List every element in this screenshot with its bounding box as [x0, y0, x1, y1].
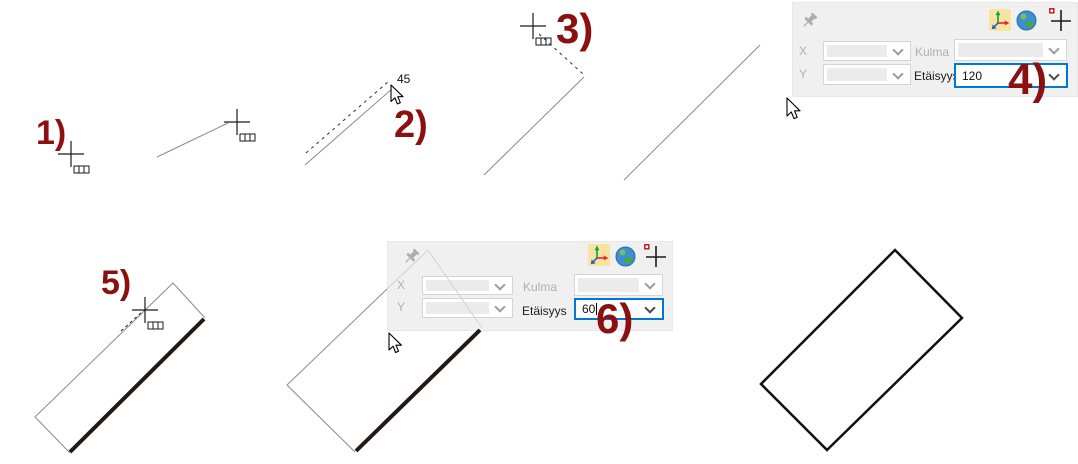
y-dropdown-value	[827, 68, 887, 81]
x-label: X	[799, 44, 807, 58]
x-dropdown[interactable]	[823, 41, 911, 61]
mouse-cursor-icon	[389, 333, 401, 353]
distance-label: Etäisyys	[522, 304, 567, 318]
y-dropdown[interactable]	[823, 64, 911, 85]
step4-line	[624, 45, 760, 180]
tutorial-canvas: X Y Kulma Etäisyys 120	[0, 0, 1078, 464]
step3-line	[484, 77, 584, 175]
step2-line	[305, 88, 393, 165]
x-dropdown[interactable]	[422, 276, 513, 295]
crosshair-cursor-icon	[520, 13, 551, 45]
pin-icon[interactable]	[801, 12, 819, 32]
crosshair-cursor-icon	[224, 109, 255, 141]
crosshair-cursor-icon	[132, 297, 163, 329]
angle-dropdown-value	[578, 278, 639, 292]
step-label-4: 4)	[1008, 58, 1047, 102]
angle-dropdown[interactable]	[574, 274, 663, 296]
step6-bottom-edge	[287, 385, 355, 452]
axis-origin-icon[interactable]	[989, 9, 1011, 31]
step5-base-line	[70, 319, 204, 452]
chevron-down-icon	[1048, 43, 1059, 54]
step5-dashed-line	[121, 312, 142, 331]
angle-annotation: 45	[397, 72, 410, 86]
y-label: Y	[397, 300, 405, 314]
chevron-down-icon	[644, 302, 655, 313]
step2-dashed-line	[306, 81, 389, 153]
chevron-down-icon	[892, 44, 903, 55]
crosshair-plus-icon[interactable]	[644, 244, 667, 268]
angle-label: Kulma	[523, 280, 557, 294]
distance-value: 120	[962, 69, 982, 83]
chevron-down-icon	[644, 278, 655, 289]
pin-icon[interactable]	[403, 248, 421, 268]
step6-base-line	[356, 330, 480, 451]
globe-icon[interactable]	[615, 246, 636, 267]
crosshair-plus-icon[interactable]	[1049, 8, 1072, 32]
mouse-cursor-icon	[787, 98, 800, 119]
step-label-2: 2)	[394, 106, 428, 144]
chevron-down-icon	[1048, 69, 1059, 80]
step6-left-edge	[287, 289, 387, 385]
y-dropdown-value	[426, 302, 489, 314]
mouse-cursor-icon	[391, 85, 403, 104]
step1-line	[157, 123, 228, 157]
final-rectangle	[761, 250, 962, 450]
step-label-1: 1)	[36, 116, 66, 150]
step-label-6: 6)	[596, 298, 633, 340]
step5-rectangle-preview	[35, 283, 205, 453]
y-label: Y	[799, 67, 807, 81]
globe-icon[interactable]	[1016, 10, 1037, 31]
x-dropdown-value	[827, 45, 887, 57]
chevron-down-icon	[494, 279, 505, 290]
chevron-down-icon	[494, 301, 505, 312]
x-dropdown-value	[426, 280, 489, 291]
chevron-down-icon	[892, 68, 903, 79]
step-label-3: 3)	[556, 8, 593, 50]
angle-label: Kulma	[915, 45, 949, 59]
y-dropdown[interactable]	[422, 298, 513, 318]
x-label: X	[397, 278, 405, 292]
step-label-5: 5)	[101, 266, 131, 300]
axis-origin-icon[interactable]	[588, 244, 610, 266]
distance-label: Etäisyys	[914, 69, 959, 83]
distance-value: 60	[582, 302, 595, 316]
